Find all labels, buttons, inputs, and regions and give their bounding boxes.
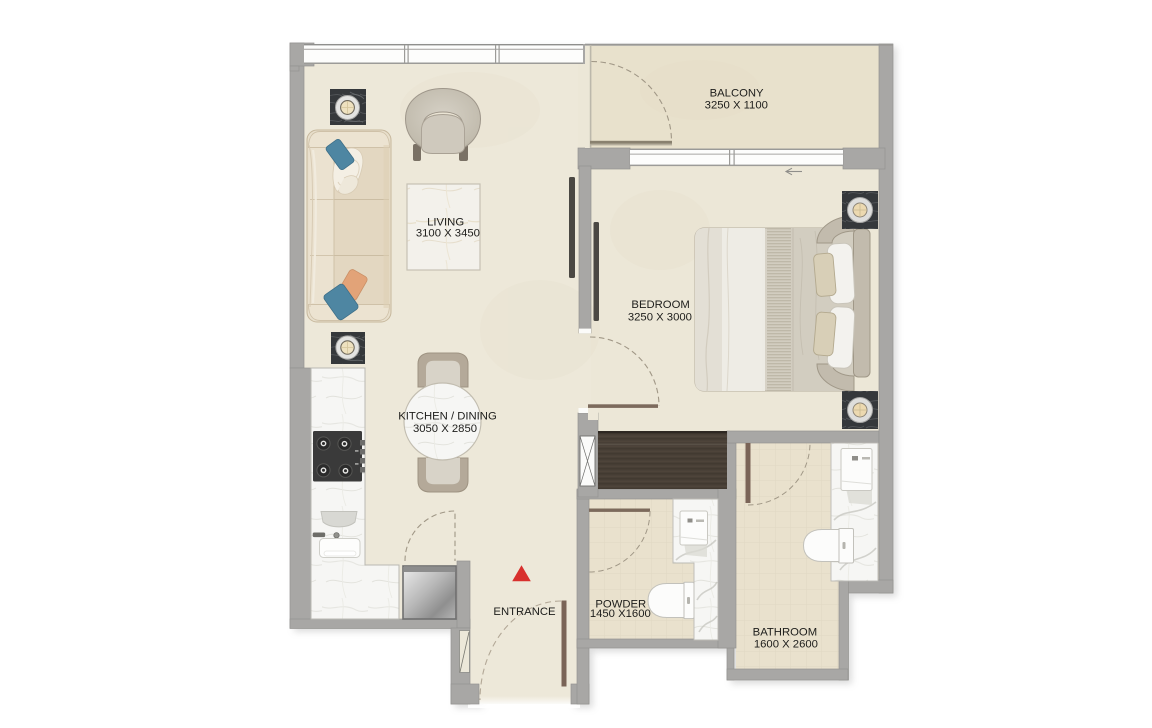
svg-text:1600 X 2600: 1600 X 2600 [754,639,818,651]
svg-text:3100 X 3450: 3100 X 3450 [416,228,480,240]
svg-text:BALCONY: BALCONY [710,88,764,100]
svg-text:3050 X 2850: 3050 X 2850 [413,423,477,435]
svg-text:3250 X 3000: 3250 X 3000 [628,311,692,323]
svg-text:BEDROOM: BEDROOM [631,299,689,311]
svg-text:KITCHEN / DINING: KITCHEN / DINING [398,411,497,423]
svg-text:3250 X 1100: 3250 X 1100 [705,100,768,112]
svg-text:1450 X1600: 1450 X1600 [590,608,651,620]
svg-text:BATHROOM: BATHROOM [753,627,817,639]
svg-text:ENTRANCE: ENTRANCE [493,606,556,618]
